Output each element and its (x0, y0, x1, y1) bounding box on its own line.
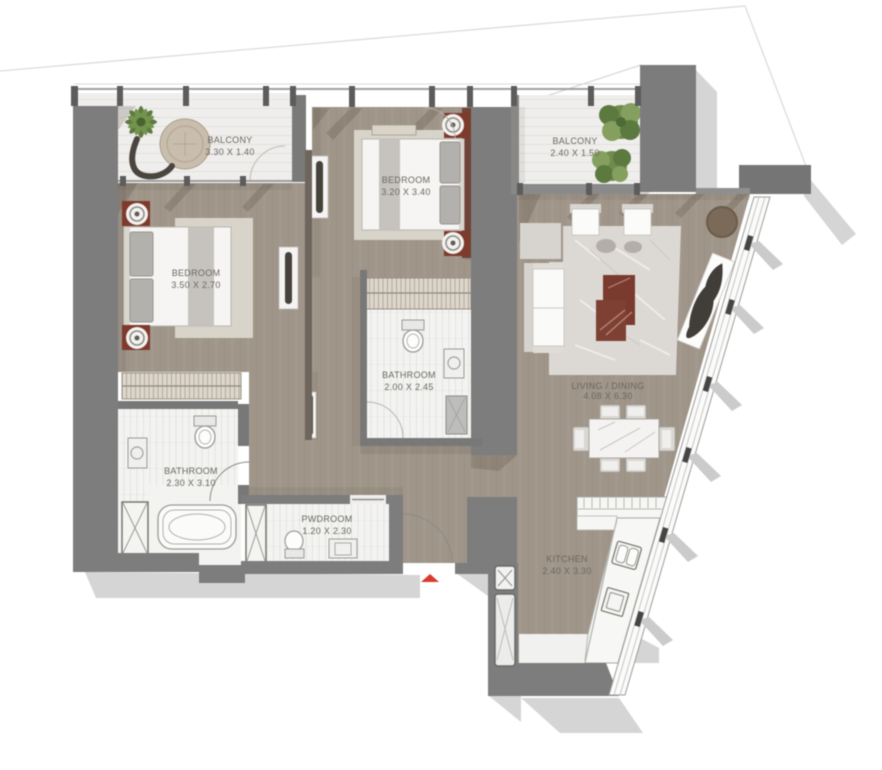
svg-text:2.00 X 2.45: 2.00 X 2.45 (384, 382, 433, 392)
svg-text:LIVING / DINING: LIVING / DINING (571, 381, 644, 391)
svg-text:2.40 X 1.50: 2.40 X 1.50 (550, 148, 599, 158)
svg-text:BALCONY: BALCONY (552, 136, 597, 146)
svg-text:BALCONY: BALCONY (207, 135, 252, 145)
svg-text:2.40 X 3.30: 2.40 X 3.30 (542, 566, 591, 576)
svg-text:3.50 X 2.70: 3.50 X 2.70 (171, 280, 220, 290)
svg-text:1.20 X 2.30: 1.20 X 2.30 (302, 526, 351, 536)
svg-text:PWDROOM: PWDROOM (301, 514, 352, 524)
svg-text:3.20 X 3.40: 3.20 X 3.40 (381, 187, 430, 197)
svg-text:BEDROOM: BEDROOM (172, 268, 221, 278)
svg-text:2.30 X 3.10: 2.30 X 3.10 (166, 478, 215, 488)
svg-text:BEDROOM: BEDROOM (382, 175, 431, 185)
svg-text:3.30 X 1.40: 3.30 X 1.40 (205, 147, 254, 157)
svg-text:BATHROOM: BATHROOM (382, 370, 436, 380)
svg-text:BATHROOM: BATHROOM (164, 466, 218, 476)
svg-text:KITCHEN: KITCHEN (546, 554, 588, 564)
svg-text:4.08 X 6.30: 4.08 X 6.30 (583, 391, 632, 401)
